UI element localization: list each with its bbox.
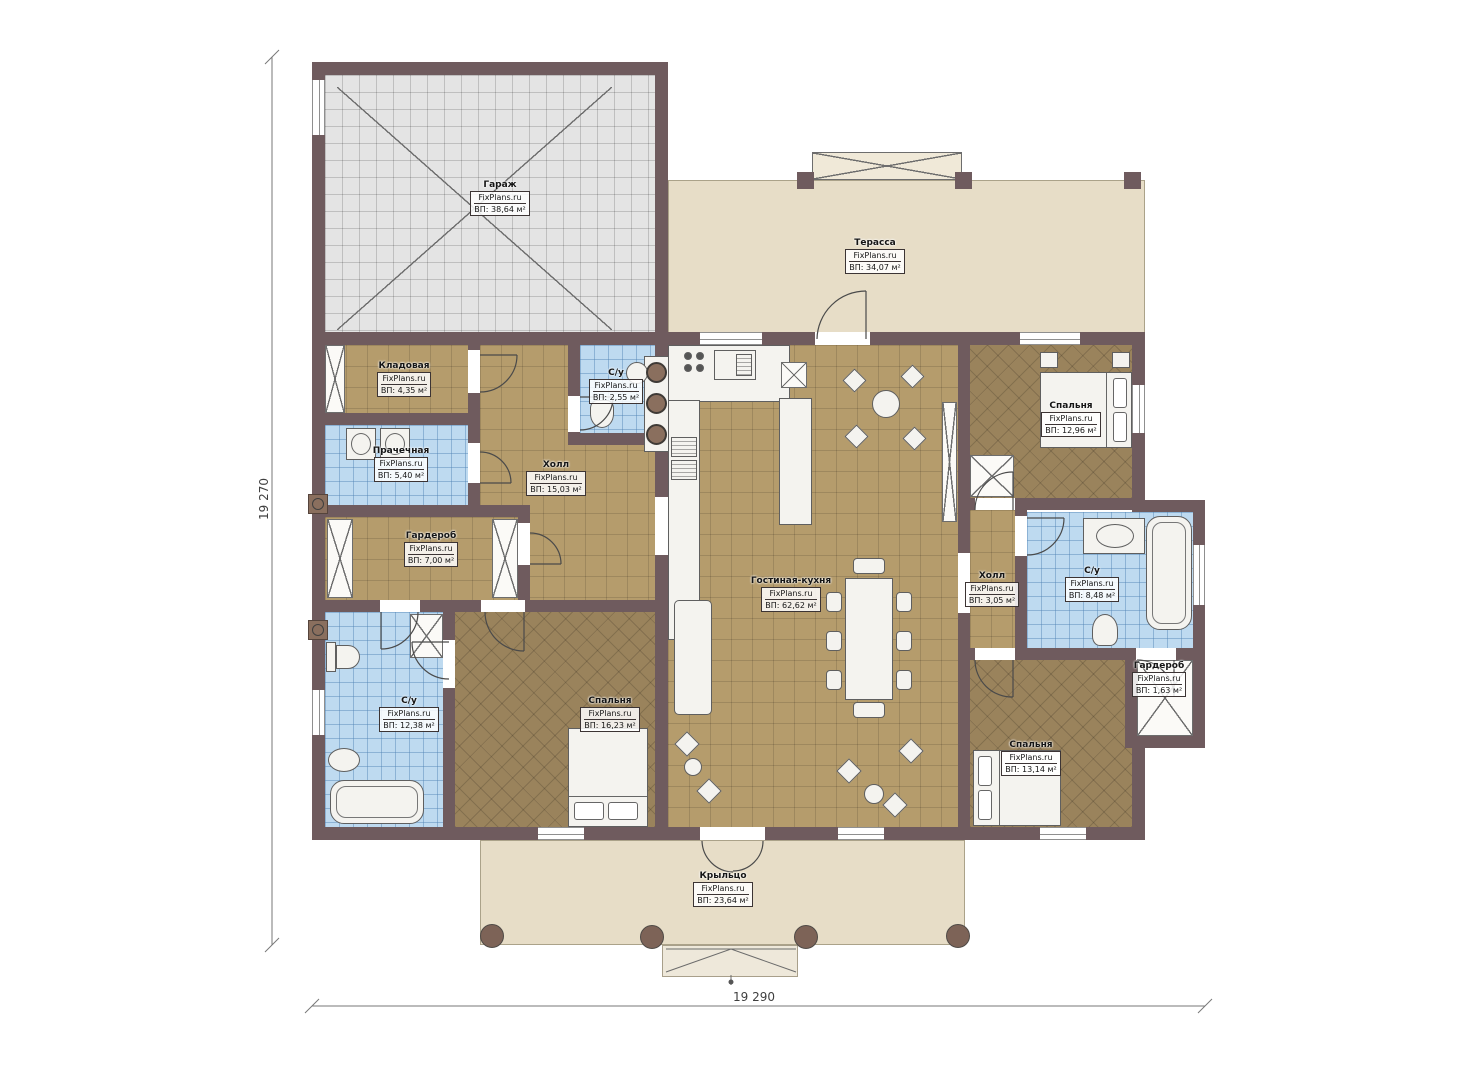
bed-blanket-line: [569, 796, 647, 797]
room-label-storage: Кладовая FixPlans.ruВП: 4,35 м²: [356, 361, 452, 397]
room-label-porch: Крыльцо FixPlans.ruВП: 23,64 м²: [675, 871, 771, 907]
porch-column: [946, 924, 970, 948]
door-opening: [443, 640, 455, 688]
wall-segment: [655, 62, 668, 345]
door-opening: [1015, 516, 1027, 556]
pillow: [608, 802, 638, 820]
bathtub-inner: [1152, 522, 1186, 624]
room-name: Холл: [543, 460, 569, 471]
room-area: ВП: 23,64 м²: [697, 895, 748, 906]
door-opening: [700, 827, 765, 840]
room-name: Прачечная: [373, 446, 430, 457]
stove-burner: [696, 364, 704, 372]
room-name: С/у: [608, 368, 624, 379]
window: [838, 827, 884, 840]
room-name: Спальня: [588, 696, 631, 707]
door-opening: [655, 497, 668, 555]
wardrobe-unit: [327, 519, 353, 598]
wardrobe-unit: [492, 519, 518, 598]
nightstand: [1040, 352, 1058, 368]
brand-link: FixPlans.ru: [765, 588, 816, 600]
dining-chair: [853, 558, 885, 574]
shelving-unit: [325, 345, 345, 413]
room-name: Гараж: [483, 180, 516, 191]
window: [1193, 545, 1205, 605]
wall-segment: [325, 505, 530, 517]
kitchen-island: [779, 398, 812, 525]
toilet-bowl: [1092, 614, 1118, 646]
room-area: ВП: 3,05 м²: [969, 595, 1015, 606]
door-opening: [1136, 648, 1176, 660]
wall-segment: [1132, 748, 1145, 840]
room-name: С/у: [1084, 566, 1100, 577]
room-area: ВП: 5,40 м²: [378, 470, 424, 481]
room-area: ВП: 38,64 м²: [474, 204, 525, 215]
nightstand: [1112, 352, 1130, 368]
stove-burner: [684, 352, 692, 360]
room-label-wardrobe-main: Гардероб FixPlans.ruВП: 7,00 м²: [383, 531, 479, 567]
dining-chair: [896, 670, 912, 690]
room-area: ВП: 34,07 м²: [849, 262, 900, 273]
brand-link: FixPlans.ru: [584, 708, 635, 720]
room-name: Терасса: [854, 238, 896, 249]
stove-burner: [684, 364, 692, 372]
stove-burner: [696, 352, 704, 360]
door-opening: [468, 443, 480, 483]
room-area: ВП: 2,55 м²: [593, 392, 639, 403]
toilet-bowl: [590, 400, 614, 428]
room-label-bath-right: С/у FixPlans.ruВП: 8,48 м²: [1044, 566, 1140, 602]
wall-unit: [308, 620, 328, 640]
room-area: ВП: 13,14 м²: [1005, 764, 1056, 775]
brand-link: FixPlans.ru: [849, 250, 900, 262]
brand-link: FixPlans.ru: [969, 583, 1015, 595]
pillow: [978, 790, 992, 820]
window: [700, 332, 762, 345]
door-opening: [975, 498, 1015, 510]
dining-table: [845, 578, 893, 700]
room-label-terrace: Терасса FixPlans.ruВП: 34,07 м²: [827, 238, 923, 274]
wall-segment: [1125, 736, 1205, 748]
room-area: ВП: 7,00 м²: [408, 555, 454, 566]
window: [1132, 385, 1145, 433]
room-name: Кладовая: [378, 361, 429, 372]
door-opening: [481, 600, 525, 612]
sofa: [674, 600, 712, 715]
dimension-left: 19 270: [257, 475, 271, 523]
brand-link: FixPlans.ru: [697, 883, 748, 895]
brand-link: FixPlans.ru: [530, 472, 581, 484]
room-area: ВП: 8,48 м²: [1069, 590, 1115, 601]
brand-link: FixPlans.ru: [474, 192, 525, 204]
shower-cabin: [410, 614, 443, 658]
oven: [671, 460, 697, 480]
window: [1040, 827, 1086, 840]
kitchen-drainer: [736, 354, 752, 376]
sink: [328, 748, 360, 772]
dining-chair: [896, 592, 912, 612]
terrace-steps: [812, 152, 962, 180]
dining-chair: [896, 631, 912, 651]
dishwasher: [671, 437, 697, 457]
brand-link: FixPlans.ru: [1069, 578, 1115, 590]
room-area: ВП: 62,62 м²: [765, 600, 816, 611]
pillow: [574, 802, 604, 820]
side-table: [684, 758, 702, 776]
sink: [1096, 524, 1134, 548]
room-area: ВП: 16,23 м²: [584, 720, 635, 731]
brand-link: FixPlans.ru: [408, 543, 454, 555]
room-name: Гостиная-кухня: [751, 576, 831, 587]
brand-link: FixPlans.ru: [383, 708, 434, 720]
wall-segment: [325, 413, 480, 425]
wall-segment: [1193, 500, 1205, 748]
floor-plan-canvas: 19 270 19 290 Гараж FixPlans.ruВП: 38,64…: [0, 0, 1474, 1080]
room-name: Спальня: [1049, 401, 1092, 412]
window: [1020, 332, 1080, 345]
terrace-column: [955, 172, 972, 189]
toilet-bowl: [336, 645, 360, 669]
terrace-column: [797, 172, 814, 189]
boiler-icon: [646, 424, 667, 445]
room-name: Крыльцо: [699, 871, 746, 882]
wardrobe-unit: [970, 455, 1014, 497]
room-label-living-kitchen: Гостиная-кухня FixPlans.ruВП: 62,62 м²: [743, 576, 839, 612]
terrace-column: [1124, 172, 1141, 189]
brand-link: FixPlans.ru: [1045, 413, 1096, 425]
toilet-tank: [326, 642, 336, 672]
dining-chair: [826, 631, 842, 651]
room-label-laundry: Прачечная FixPlans.ruВП: 5,40 м²: [353, 446, 449, 482]
room-label-bath-left: С/у FixPlans.ruВП: 12,38 м²: [361, 696, 457, 732]
room-label-wc-small: С/у FixPlans.ruВП: 2,55 м²: [568, 368, 664, 404]
wall-segment: [312, 345, 325, 840]
room-label-hall-right: Холл FixPlans.ruВП: 3,05 м²: [944, 571, 1040, 607]
brand-link: FixPlans.ru: [1005, 752, 1056, 764]
room-name: С/у: [401, 696, 417, 707]
brand-link: FixPlans.ru: [593, 380, 639, 392]
porch-column: [794, 925, 818, 949]
room-area: ВП: 15,03 м²: [530, 484, 581, 495]
vent-shaft: [781, 362, 807, 388]
wall-segment: [312, 135, 325, 345]
room-label-garage: Гараж FixPlans.ruВП: 38,64 м²: [452, 180, 548, 216]
bathtub: [1146, 516, 1192, 630]
breakfast-table: [872, 390, 900, 418]
window: [312, 690, 325, 735]
wall-segment: [312, 62, 325, 80]
fireplace: [942, 402, 957, 522]
wall-unit: [308, 494, 328, 514]
room-name: Гардероб: [1134, 661, 1185, 672]
wall-segment: [312, 62, 668, 75]
bathtub-inner: [336, 786, 418, 818]
room-name: Гардероб: [406, 531, 457, 542]
room-area: ВП: 4,35 м²: [381, 385, 427, 396]
door-opening: [975, 648, 1015, 660]
window: [312, 80, 325, 135]
brand-link: FixPlans.ru: [381, 373, 427, 385]
bathtub: [330, 780, 424, 824]
porch-column: [640, 925, 664, 949]
porch-steps: [662, 945, 798, 977]
window: [538, 827, 584, 840]
room-label-bedroom-left: Спальня FixPlans.ruВП: 16,23 м²: [562, 696, 658, 732]
dining-chair: [853, 702, 885, 718]
door-opening: [518, 523, 530, 565]
room-name: Спальня: [1009, 740, 1052, 751]
room-label-bedroom-topright: Спальня FixPlans.ruВП: 12,96 м²: [1023, 401, 1119, 437]
brand-link: FixPlans.ru: [378, 458, 424, 470]
door-opening: [468, 350, 480, 393]
dimension-bottom: 19 290: [730, 990, 778, 1004]
room-label-bedroom-bottomright: Спальня FixPlans.ruВП: 13,14 м²: [983, 740, 1079, 776]
door-opening: [815, 332, 870, 345]
dining-chair: [826, 670, 842, 690]
room-name: Холл: [979, 571, 1005, 582]
room-area: ВП: 1,63 м²: [1136, 685, 1182, 696]
brand-link: FixPlans.ru: [1136, 673, 1182, 685]
side-table: [864, 784, 884, 804]
porch-column: [480, 924, 504, 948]
room-label-hall-main: Холл FixPlans.ruВП: 15,03 м²: [508, 460, 604, 496]
room-label-wardrobe-small: Гардероб FixPlans.ruВП: 1,63 м²: [1111, 661, 1207, 697]
room-area: ВП: 12,96 м²: [1045, 425, 1096, 436]
room-area: ВП: 12,38 м²: [383, 720, 434, 731]
door-opening: [380, 600, 420, 612]
